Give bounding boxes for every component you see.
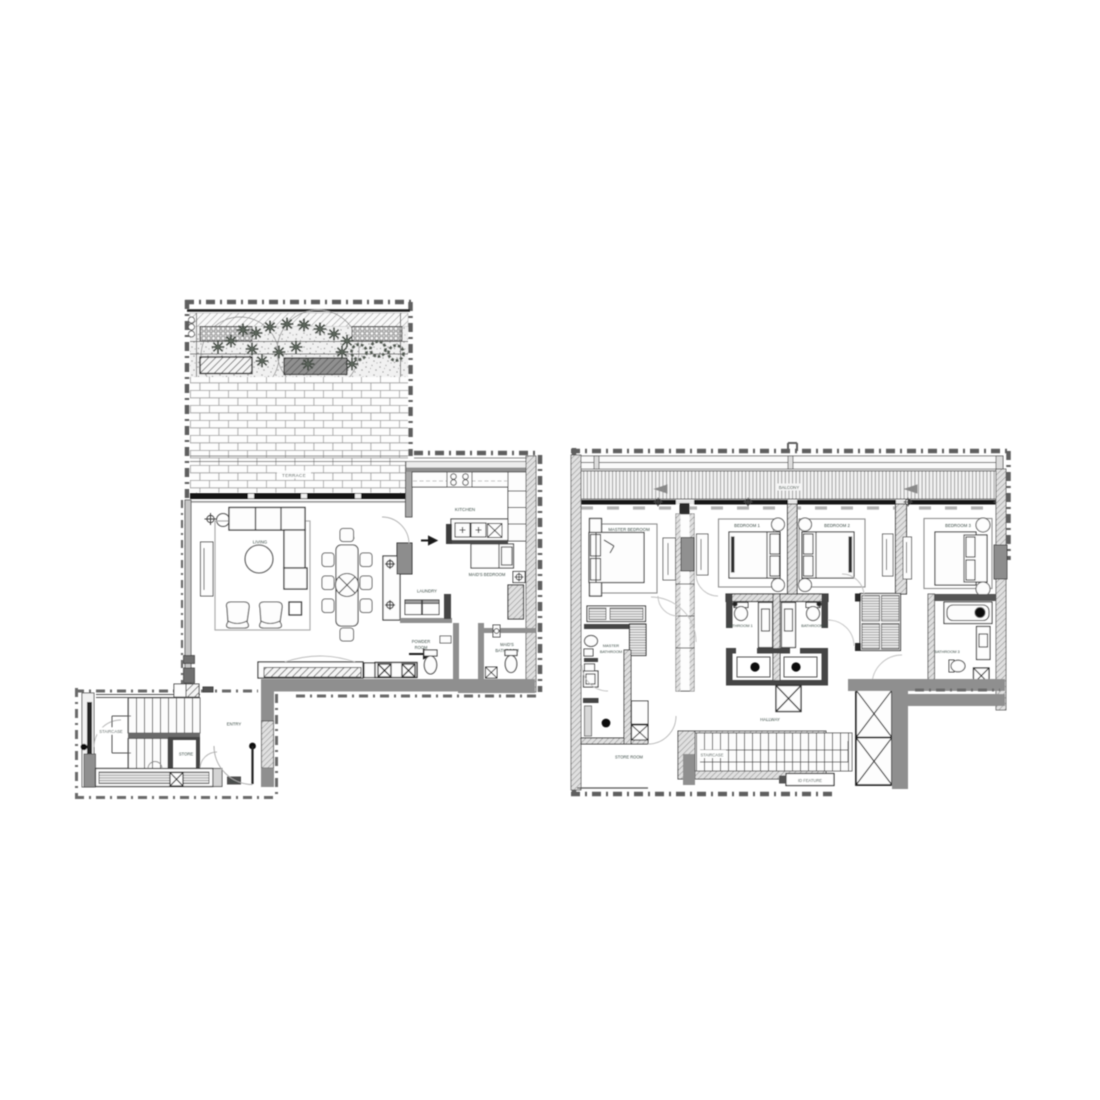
svg-text:HALLWAY: HALLWAY (760, 717, 780, 722)
svg-text:MAID'S BEDROOM: MAID'S BEDROOM (469, 572, 506, 577)
svg-text:STAIRCASE: STAIRCASE (701, 753, 724, 758)
svg-text:STORE ROOM: STORE ROOM (615, 755, 643, 760)
svg-text:BATHROOM 1: BATHROOM 1 (727, 623, 752, 628)
svg-text:BALCONY: BALCONY (779, 485, 800, 490)
svg-text:LIVING: LIVING (253, 540, 268, 545)
svg-text:STAIRCASE: STAIRCASE (99, 729, 123, 734)
svg-text:BATHROOM 2: BATHROOM 2 (801, 623, 826, 628)
svg-text:MASTER: MASTER (603, 643, 619, 648)
svg-text:ENTRY: ENTRY (227, 722, 242, 727)
svg-text:ID FEATURE: ID FEATURE (798, 778, 822, 783)
svg-text:STORE: STORE (179, 752, 194, 757)
svg-text:BEDROOM 1: BEDROOM 1 (734, 523, 760, 528)
svg-text:MAID'S: MAID'S (500, 642, 514, 647)
svg-text:MASTER BEDROOM: MASTER BEDROOM (608, 527, 650, 532)
svg-text:BEDROOM 2: BEDROOM 2 (824, 523, 850, 528)
svg-text:ROOM: ROOM (415, 645, 428, 650)
svg-text:KITCHEN: KITCHEN (455, 507, 475, 512)
svg-text:TERRACE: TERRACE (282, 473, 306, 478)
svg-text:BATHROOM 3: BATHROOM 3 (934, 649, 959, 654)
svg-text:LAUNDRY: LAUNDRY (417, 589, 437, 594)
svg-text:BEDROOM 3: BEDROOM 3 (945, 523, 971, 528)
svg-text:BATHROOM: BATHROOM (600, 649, 622, 654)
svg-text:POWDER: POWDER (412, 639, 430, 644)
